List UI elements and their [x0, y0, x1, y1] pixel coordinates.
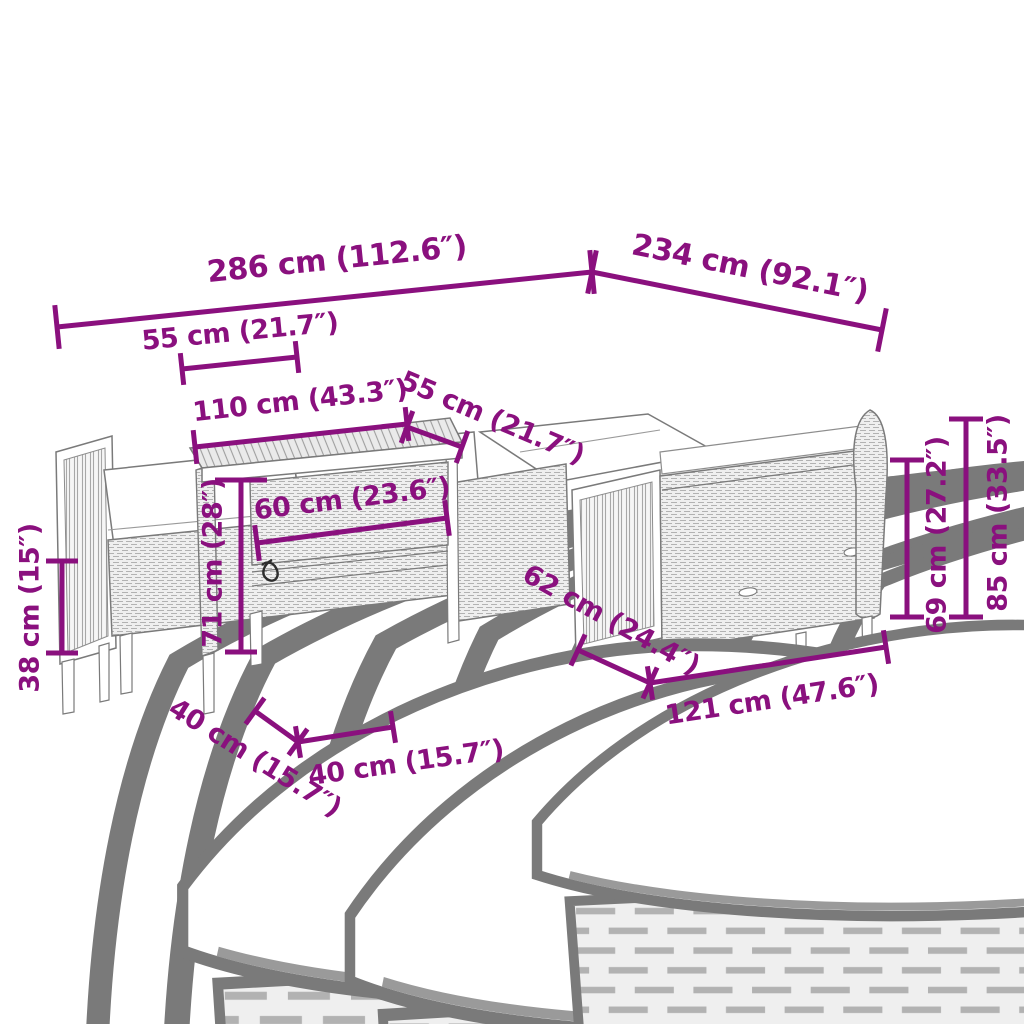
dimension-label-overall-height: 85 cm (33.5″)	[985, 414, 1012, 611]
furniture-illustration	[0, 0, 1024, 1024]
dimension-label-table-height: 71 cm (28″)	[200, 478, 227, 647]
right-back-panel	[660, 448, 878, 650]
dimension-label-seat-back-height: 69 cm (27.2″)	[924, 436, 951, 633]
dimension-label-stool-height: 38 cm (15″)	[17, 523, 44, 692]
dimension-diagram: 286 cm (112.6″) 234 cm (92.1″) 55 cm (21…	[0, 0, 1024, 1024]
